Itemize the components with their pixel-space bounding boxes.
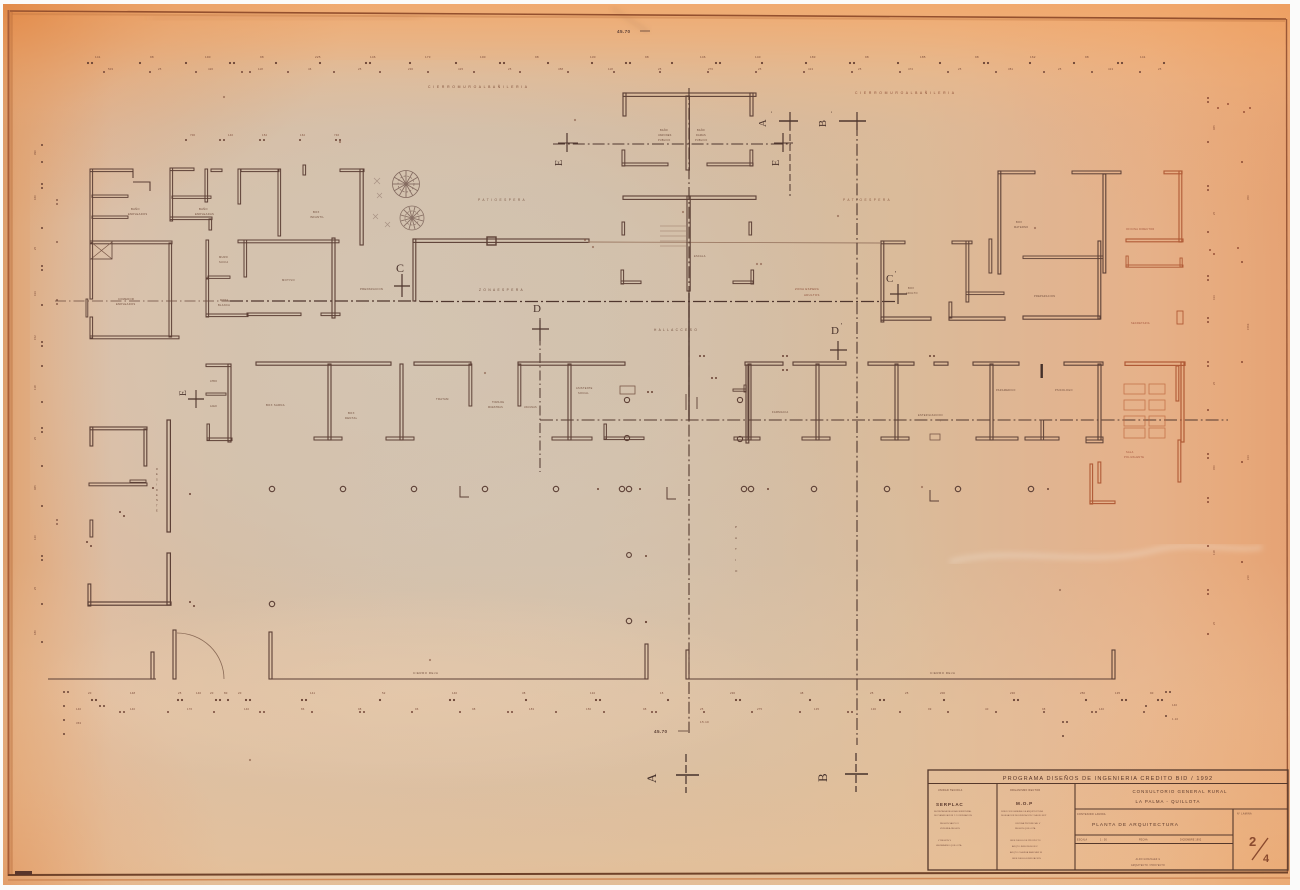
svg-text:VALPARAISO QUILLOTA: VALPARAISO QUILLOTA: [936, 844, 962, 847]
svg-text:458: 458: [558, 67, 564, 71]
svg-text:PREPARACION: PREPARACION: [360, 287, 383, 291]
svg-text:190: 190: [205, 55, 211, 59]
svg-text:C: C: [886, 273, 893, 285]
svg-text:25: 25: [1212, 621, 1216, 625]
svg-text:46: 46: [308, 67, 312, 71]
svg-text:DIRECCION GENERAL DE ARQUITECT: DIRECCION GENERAL DE ARQUITECTURA: [1001, 810, 1044, 813]
svg-text:40: 40: [985, 707, 989, 711]
svg-text:180: 180: [33, 630, 37, 635]
svg-text:225: 225: [315, 55, 321, 59]
svg-text:140: 140: [76, 707, 82, 711]
svg-text:B: B: [818, 120, 829, 127]
svg-text:472: 472: [908, 67, 914, 71]
svg-text:PROGRAMA DISEÑOS DE INGENIE: PROGRAMA DISEÑOS DE INGENIERIA CREDITO B…: [1003, 775, 1213, 782]
svg-text:152: 152: [262, 133, 268, 137]
svg-text:140: 140: [130, 707, 136, 711]
svg-text:150: 150: [586, 707, 592, 711]
svg-text:E: E: [156, 472, 158, 476]
svg-text:A: A: [758, 119, 769, 127]
svg-text:ATBO: ATBO: [210, 380, 217, 383]
svg-text:98: 98: [1042, 707, 1046, 711]
svg-text:POLIVALENTE: POLIVALENTE: [1124, 456, 1144, 459]
svg-text:45.70: 45.70: [654, 729, 668, 734]
svg-text:210: 210: [1246, 575, 1250, 580]
svg-text:25: 25: [33, 436, 37, 440]
svg-text:FECHA: FECHA: [1139, 839, 1148, 842]
svg-text:98: 98: [150, 55, 154, 59]
svg-text:D: D: [533, 303, 541, 315]
svg-text:ASISTENTE: ASISTENTE: [576, 387, 593, 390]
svg-text:C: C: [396, 261, 404, 275]
svg-text:M.O.P: M.O.P: [1016, 801, 1033, 806]
svg-text:BOX: BOX: [348, 411, 355, 415]
svg-text:PSICOLOGO: PSICOLOGO: [1055, 389, 1073, 392]
svg-text:381: 381: [1008, 67, 1014, 71]
svg-text:80: 80: [224, 691, 228, 695]
svg-text:BLANCA: BLANCA: [218, 303, 230, 307]
svg-text:P: P: [735, 525, 737, 529]
svg-text:25: 25: [1212, 211, 1216, 215]
svg-text:N° LAMINA: N° LAMINA: [1237, 813, 1252, 816]
svg-text:350: 350: [1246, 195, 1250, 200]
svg-text:PARAMEDICO: PARAMEDICO: [996, 389, 1016, 392]
svg-text:T: T: [735, 547, 737, 551]
svg-text:C I E R R O M U R O A L B: C I E R R O M U R O A L B A Ñ I L E R I …: [855, 90, 955, 95]
svg-text:152: 152: [33, 335, 37, 340]
svg-text:ESCALA: ESCALA: [694, 255, 706, 258]
svg-text:140: 140: [755, 55, 761, 59]
svg-text:': ': [771, 112, 772, 118]
svg-text:N: N: [156, 498, 158, 502]
svg-text:230: 230: [408, 67, 414, 71]
svg-text:275: 275: [757, 707, 763, 711]
svg-text:SERPLAC: SERPLAC: [936, 802, 964, 807]
svg-text:25: 25: [33, 246, 37, 250]
svg-text:ESTERILIZACION: ESTERILIZACION: [918, 414, 943, 417]
svg-text:98: 98: [643, 707, 647, 711]
svg-text:E: E: [156, 493, 158, 497]
svg-text:E: E: [179, 390, 189, 396]
svg-text:!: !: [940, 420, 941, 423]
svg-text:P A T I O E S P E R A: P A T I O E S P E R A: [843, 198, 890, 202]
svg-text:25: 25: [1158, 67, 1162, 71]
svg-text:25: 25: [508, 67, 512, 71]
svg-text:INFANTIL: INFANTIL: [310, 215, 324, 219]
svg-text:140: 140: [1099, 707, 1105, 711]
svg-text:100: 100: [480, 55, 486, 59]
svg-text:1 : 50: 1 : 50: [1100, 840, 1107, 842]
svg-text:700: 700: [190, 133, 196, 137]
svg-text:503: 503: [108, 67, 114, 71]
svg-text:DE PLANIFICACION Y COORDINACIO: DE PLANIFICACION Y COORDINACION: [934, 814, 972, 817]
svg-text:': ': [895, 271, 896, 278]
svg-text:140: 140: [196, 691, 202, 695]
svg-text:98: 98: [260, 55, 264, 59]
svg-text:BOX: BOX: [1016, 221, 1022, 224]
svg-text:162: 162: [300, 133, 306, 137]
svg-text:120: 120: [33, 535, 37, 540]
svg-text:413: 413: [808, 67, 814, 71]
svg-text:PLANTA DE ARQUITECTURA: PLANTA DE ARQUITECTURA: [1092, 822, 1179, 828]
svg-text:140: 140: [452, 691, 458, 695]
svg-text:415: 415: [458, 67, 464, 71]
svg-text:132: 132: [590, 691, 596, 695]
svg-text:ALDO GONZALEZ G: ALDO GONZALEZ G: [1136, 858, 1161, 861]
svg-text:141: 141: [310, 691, 316, 695]
svg-text:25: 25: [858, 67, 862, 71]
svg-text:VIVIENDA REGION: VIVIENDA REGION: [940, 827, 960, 830]
svg-text:MUESTRAS: MUESTRAS: [488, 406, 503, 409]
svg-text:ADULTOS: ADULTOS: [804, 293, 820, 297]
svg-text:48: 48: [800, 691, 804, 695]
svg-text:TOMA DE: TOMA DE: [492, 401, 504, 404]
svg-text:118: 118: [33, 385, 37, 390]
svg-text:38: 38: [522, 691, 526, 695]
svg-text:135: 135: [1115, 691, 1121, 695]
svg-text:DENTAL: DENTAL: [345, 416, 358, 420]
svg-text:25: 25: [958, 67, 962, 71]
svg-text:162: 162: [1030, 55, 1036, 59]
svg-text:VARONES: VARONES: [658, 134, 672, 137]
svg-text:Z O N A E S P E R A: Z O N A E S P E R A: [479, 288, 523, 292]
svg-text:118: 118: [258, 67, 263, 71]
svg-text:146: 146: [370, 55, 376, 59]
svg-text:118: 118: [608, 67, 613, 71]
svg-text:PUBLICO: PUBLICO: [695, 139, 707, 142]
svg-text:465: 465: [33, 485, 37, 490]
svg-text:200: 200: [940, 691, 946, 695]
svg-text:270: 270: [708, 67, 714, 71]
svg-text:ESCALA: ESCALA: [1077, 839, 1088, 842]
svg-text:DAMAS: DAMAS: [696, 134, 706, 137]
svg-text:98: 98: [645, 55, 649, 59]
svg-text:ARQTO CLAUDIA SANCHEZ M: ARQTO CLAUDIA SANCHEZ M: [1010, 851, 1042, 854]
svg-text:413: 413: [1246, 455, 1250, 460]
svg-text:25: 25: [870, 691, 874, 695]
svg-text:DELEGACION DE EDIFICACION Y SA: DELEGACION DE EDIFICACION Y SALUD MOP: [1001, 814, 1047, 817]
svg-text:413: 413: [33, 291, 37, 296]
svg-text:REGION VALPO V: REGION VALPO V: [940, 822, 959, 825]
svg-text:20: 20: [210, 691, 214, 695]
svg-text:185: 185: [920, 55, 926, 59]
svg-text:FARMACIA: FARMACIA: [772, 410, 789, 414]
svg-text:118: 118: [1212, 550, 1216, 555]
svg-text:420: 420: [208, 67, 214, 71]
svg-text:140: 140: [244, 707, 250, 711]
svg-text:BOX: BOX: [313, 210, 320, 214]
svg-text:': ': [841, 323, 842, 330]
svg-text:15: 15: [660, 691, 664, 695]
svg-text:S: S: [156, 477, 158, 481]
svg-text:135: 135: [814, 707, 820, 711]
svg-text:V REGION V: V REGION V: [938, 840, 952, 842]
svg-text:250: 250: [1080, 691, 1086, 695]
svg-text:MATERNO: MATERNO: [1014, 226, 1028, 229]
svg-text:98: 98: [472, 707, 476, 711]
svg-text:CIERRO REJA: CIERRO REJA: [413, 671, 438, 675]
svg-text:H A L L A C C E S O: H A L L A C C E S O: [654, 328, 698, 332]
svg-text:230: 230: [730, 691, 736, 695]
svg-text:E: E: [554, 160, 565, 166]
svg-text:52: 52: [382, 691, 386, 695]
svg-text:140: 140: [228, 133, 234, 137]
svg-text:413: 413: [1108, 67, 1114, 71]
svg-text:25: 25: [178, 691, 182, 695]
svg-text:OFICINA DIRECTOR: OFICINA DIRECTOR: [1126, 228, 1155, 231]
svg-text:SECRETARIA: SECRETARIA: [1131, 322, 1150, 325]
svg-text:EMPLEADOS: EMPLEADOS: [128, 212, 147, 216]
svg-text:PREPARACION: PREPARACION: [1034, 295, 1055, 298]
svg-text:C I E R R O M U R O A L B: C I E R R O M U R O A L B A Ñ I L E R I …: [428, 84, 528, 89]
svg-text:98: 98: [1085, 55, 1089, 59]
svg-text:90: 90: [1150, 691, 1154, 695]
svg-text:183: 183: [529, 707, 535, 711]
svg-text:DICIEMBRE 1992: DICIEMBRE 1992: [1180, 840, 1202, 842]
svg-text:98: 98: [865, 55, 869, 59]
svg-text:D: D: [831, 325, 839, 337]
svg-text:JEFE DELEG EDIFICACION: JEFE DELEG EDIFICACION: [1012, 857, 1041, 860]
svg-text:160: 160: [33, 195, 37, 200]
svg-text:25: 25: [33, 586, 37, 590]
svg-text:25: 25: [658, 67, 662, 71]
svg-text:ADULTO: ADULTO: [906, 292, 918, 295]
svg-text:E: E: [771, 160, 782, 166]
svg-text:183: 183: [810, 55, 816, 59]
svg-text:AJEO: AJEO: [210, 405, 217, 408]
svg-text:4: 4: [1263, 853, 1270, 865]
svg-text:EMPLEADAS: EMPLEADAS: [195, 212, 214, 216]
svg-text:25: 25: [1058, 67, 1062, 71]
svg-text:230: 230: [1010, 691, 1016, 695]
svg-text:TRATAM: TRATAM: [436, 397, 449, 401]
svg-text:98: 98: [535, 55, 539, 59]
svg-text:413: 413: [1212, 295, 1216, 300]
svg-text:SOCIAL: SOCIAL: [578, 392, 589, 395]
svg-text:363: 363: [76, 721, 82, 725]
svg-text:P A T I O E S P E R A: P A T I O E S P E R A: [478, 198, 525, 202]
svg-text:1563: 1563: [1246, 323, 1250, 330]
svg-text:CIERRO REJA: CIERRO REJA: [930, 671, 955, 675]
svg-text:CONTENIDO LAMINA: CONTENIDO LAMINA: [1077, 813, 1106, 816]
svg-text:OFICINA PROVINCIAL V: OFICINA PROVINCIAL V: [1015, 822, 1041, 825]
svg-text:VACUNAS: VACUNAS: [524, 406, 537, 409]
svg-text:130: 130: [590, 55, 596, 59]
svg-text:B: B: [815, 773, 830, 782]
svg-text:25: 25: [758, 67, 762, 71]
svg-text:': ': [831, 112, 832, 118]
svg-text:20: 20: [238, 691, 242, 695]
svg-text:98: 98: [975, 55, 979, 59]
svg-text:A: A: [735, 536, 737, 540]
svg-text:173: 173: [425, 55, 431, 59]
svg-text:390: 390: [33, 150, 37, 155]
svg-text:25: 25: [358, 67, 362, 71]
svg-text:130: 130: [871, 707, 877, 711]
svg-text:ARQTO JEFE REGION V: ARQTO JEFE REGION V: [1012, 845, 1038, 848]
svg-text:45.70: 45.70: [617, 29, 631, 34]
svg-text:96: 96: [415, 707, 419, 711]
svg-text:BOX SARNA: BOX SARNA: [266, 403, 285, 407]
svg-text:JEFE DELEG DE PROYECTO: JEFE DELEG DE PROYECTO: [1010, 840, 1041, 842]
svg-text:148: 148: [130, 691, 136, 695]
svg-text:SECRETARIA REGIONAL MINISTERIA: SECRETARIA REGIONAL MINISTERIAL: [934, 810, 972, 813]
svg-text:BAÑO: BAÑO: [660, 129, 668, 132]
svg-text:ZONA ESPERA: ZONA ESPERA: [795, 287, 819, 291]
svg-text:EMPLEADOS: EMPLEADOS: [116, 302, 135, 306]
svg-text:86: 86: [301, 707, 305, 711]
svg-text:REGION QUILLOTA: REGION QUILLOTA: [1015, 827, 1036, 830]
svg-text:MURO: MURO: [219, 255, 228, 259]
svg-text:176: 176: [187, 707, 193, 711]
svg-text:15.10: 15.10: [700, 720, 709, 724]
svg-text:25: 25: [905, 691, 909, 695]
svg-text:A: A: [644, 773, 659, 783]
svg-text:BAÑO: BAÑO: [697, 129, 705, 132]
svg-text:LA PALMA - QUILLOTA: LA PALMA - QUILLOTA: [1136, 799, 1201, 804]
svg-text:746: 746: [334, 133, 340, 137]
svg-text:140: 140: [1172, 703, 1178, 707]
svg-text:BOX: BOX: [908, 287, 914, 290]
svg-text:25: 25: [158, 67, 162, 71]
svg-text:141: 141: [1140, 55, 1146, 59]
svg-text:20: 20: [88, 691, 92, 695]
svg-text:99: 99: [928, 707, 932, 711]
svg-text:E: E: [156, 509, 158, 513]
svg-text:R: R: [156, 467, 158, 471]
svg-text:146: 146: [700, 55, 706, 59]
svg-text:2: 2: [1249, 834, 1256, 849]
svg-text:CONSULTORIO GENERAL RURAL: CONSULTORIO GENERAL RURAL: [1133, 789, 1228, 794]
svg-text:141: 141: [95, 55, 101, 59]
svg-text:SALA: SALA: [1126, 451, 1134, 454]
svg-text:ORGANISMO RECTOR: ORGANISMO RECTOR: [1010, 789, 1040, 792]
svg-text:ARQUITECTO / PROYECTO: ARQUITECTO / PROYECTO: [1131, 864, 1165, 867]
svg-text:98: 98: [358, 707, 362, 711]
svg-text:UNIDAD TECNICA: UNIDAD TECNICA: [938, 789, 963, 792]
svg-text:465: 465: [1212, 125, 1216, 130]
svg-text:D: D: [156, 488, 158, 492]
svg-text:25: 25: [1212, 381, 1216, 385]
svg-text:MOTIVO: MOTIVO: [282, 278, 295, 282]
svg-text:SUCIA: SUCIA: [219, 260, 228, 264]
svg-text:COMEDOR: COMEDOR: [118, 297, 134, 301]
svg-text:PUBLICO: PUBLICO: [658, 139, 670, 142]
svg-text:1.10: 1.10: [1172, 717, 1178, 721]
svg-text:25: 25: [700, 707, 704, 711]
svg-text:450: 450: [1212, 465, 1216, 470]
